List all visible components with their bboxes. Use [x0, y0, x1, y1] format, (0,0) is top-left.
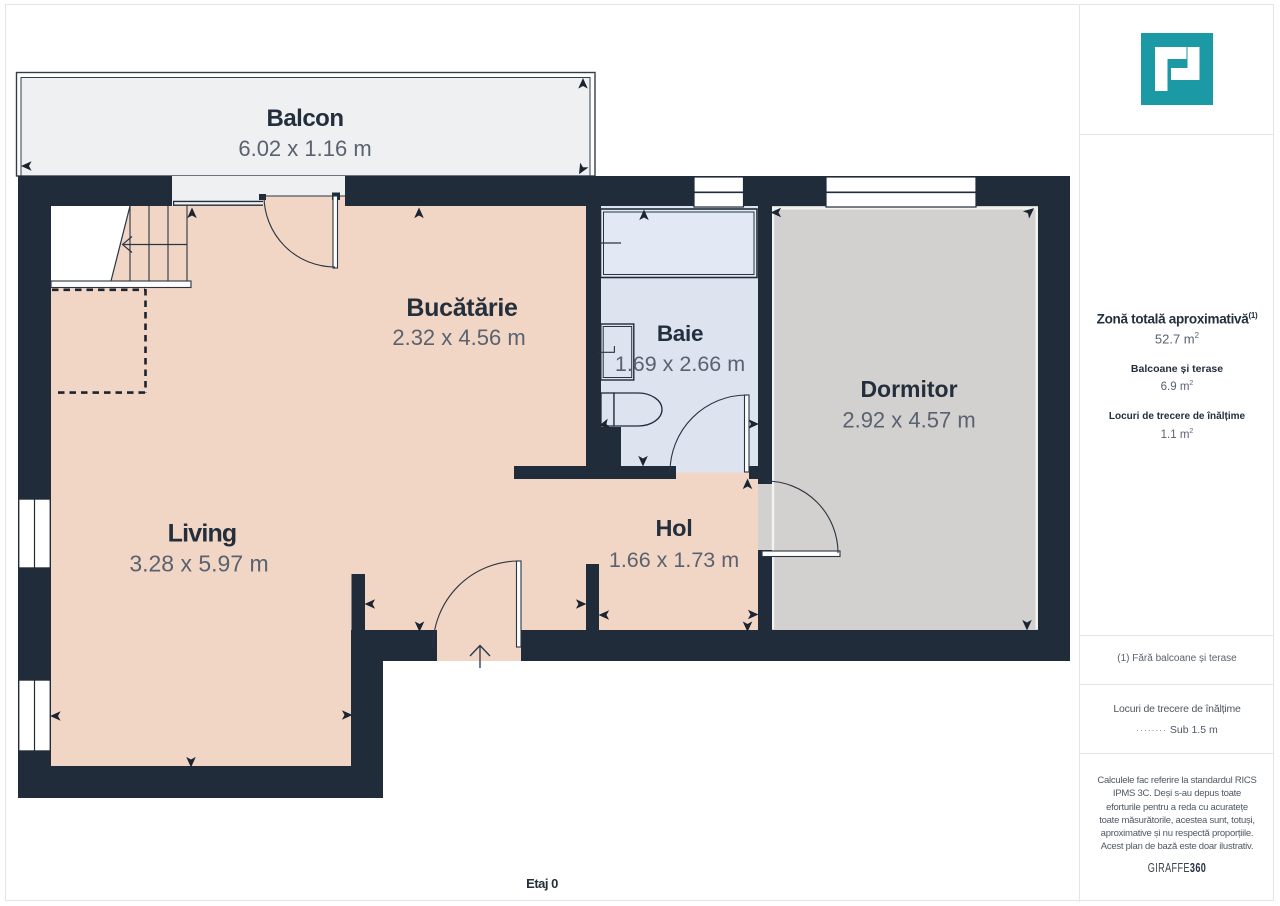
svg-text:Bucătărie: Bucătărie	[406, 294, 518, 322]
svg-text:Dormitor: Dormitor	[860, 376, 957, 402]
svg-text:Living: Living	[168, 520, 237, 548]
svg-text:6.02 x 1.16 m: 6.02 x 1.16 m	[238, 136, 371, 161]
svg-text:3.28 x 5.97 m: 3.28 x 5.97 m	[129, 551, 268, 577]
svg-text:2.92 x 4.57 m: 2.92 x 4.57 m	[842, 408, 975, 433]
svg-text:2.32 x 4.56 m: 2.32 x 4.56 m	[392, 325, 525, 350]
svg-text:Balcon: Balcon	[266, 105, 343, 132]
svg-text:1.69 x 2.66 m: 1.69 x 2.66 m	[615, 352, 745, 376]
svg-text:1.66 x 1.73 m: 1.66 x 1.73 m	[609, 548, 739, 572]
svg-text:Hol: Hol	[656, 515, 693, 541]
svg-text:Baie: Baie	[657, 321, 703, 346]
